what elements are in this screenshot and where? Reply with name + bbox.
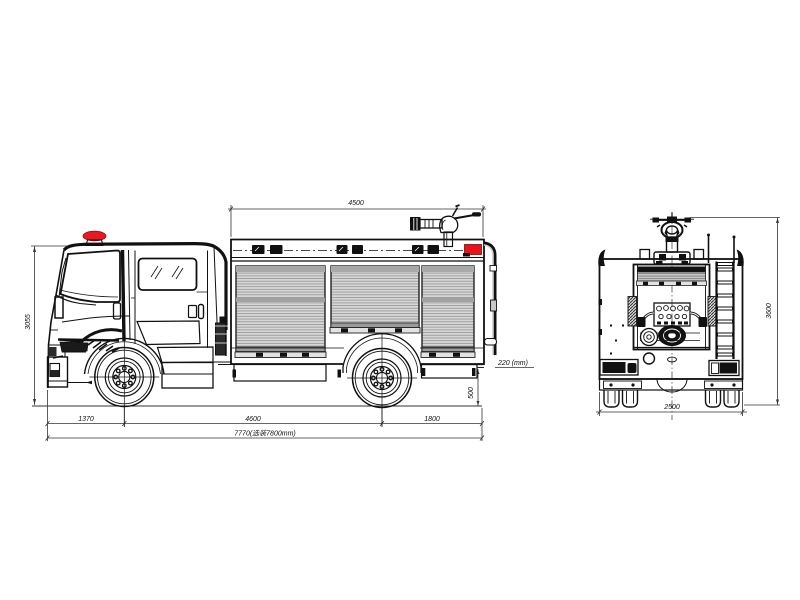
- svg-text:4500: 4500: [348, 200, 364, 207]
- svg-text:4600: 4600: [245, 416, 261, 423]
- svg-text:500: 500: [468, 387, 475, 399]
- svg-text:3055: 3055: [25, 314, 32, 330]
- svg-text:7770(选装7800mm): 7770(选装7800mm): [234, 430, 295, 438]
- svg-text:1800: 1800: [424, 416, 440, 423]
- svg-text:2500: 2500: [663, 404, 680, 411]
- svg-text:3600: 3600: [766, 303, 773, 319]
- svg-text:220 (mm): 220 (mm): [497, 360, 528, 367]
- svg-text:1370: 1370: [78, 416, 94, 423]
